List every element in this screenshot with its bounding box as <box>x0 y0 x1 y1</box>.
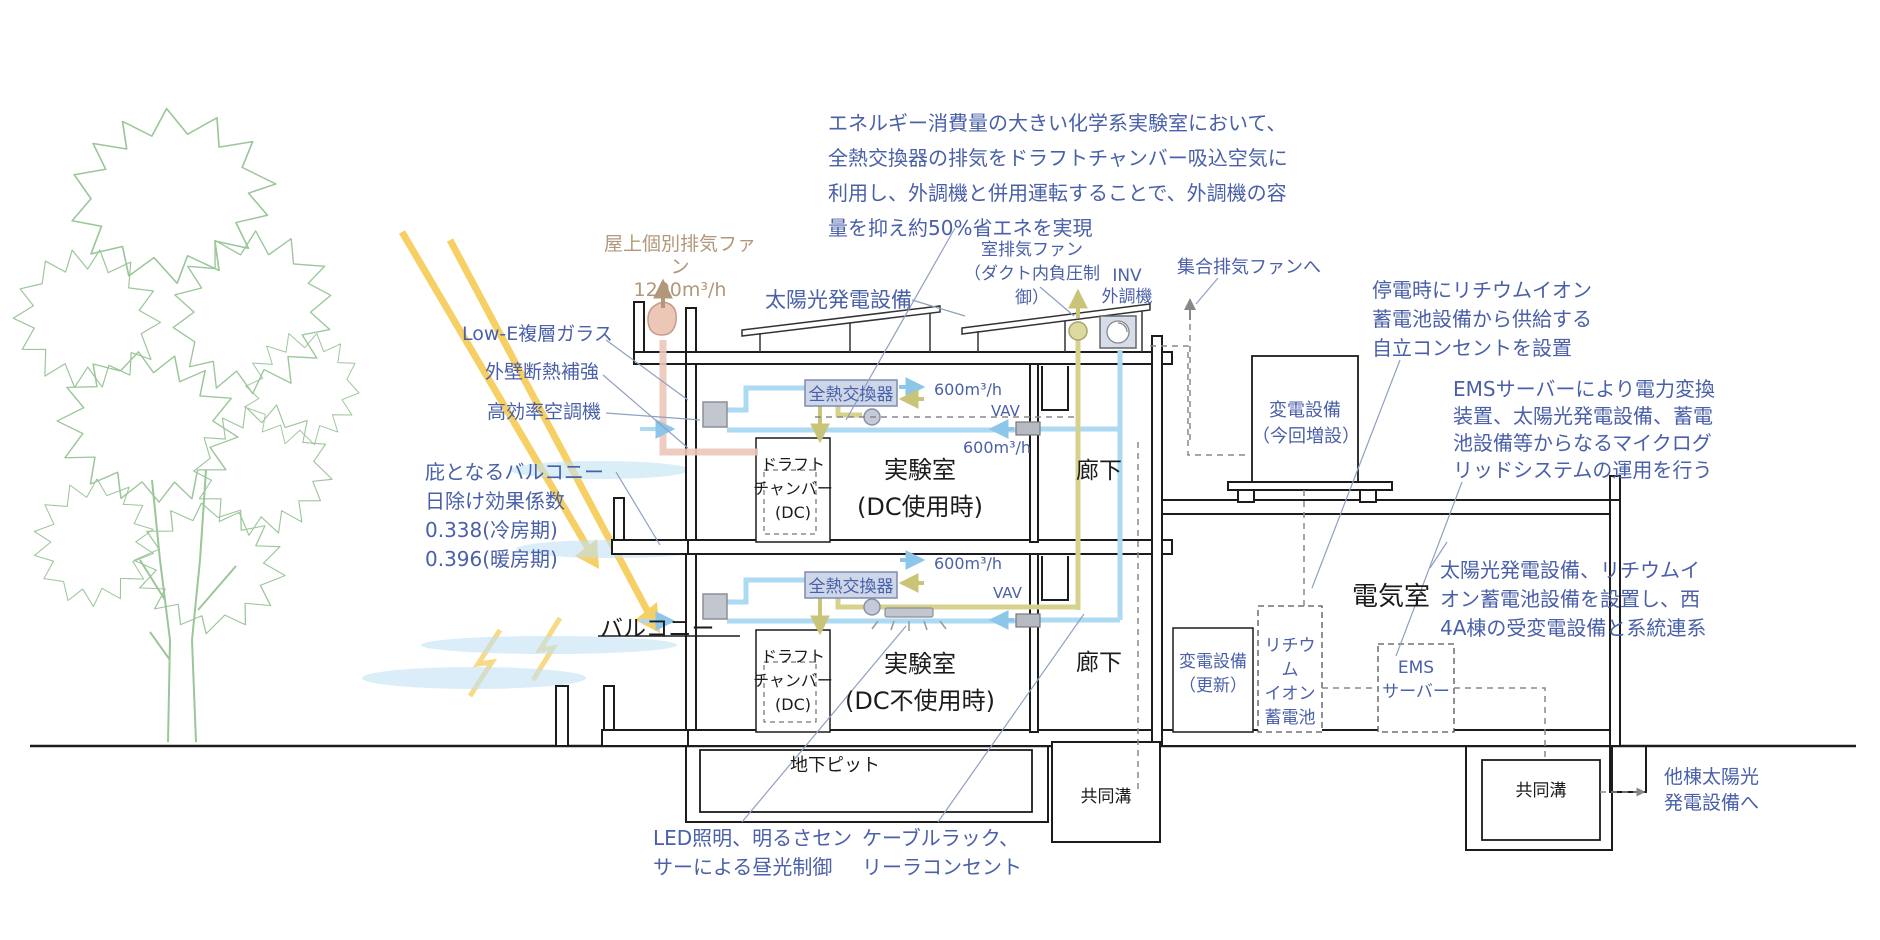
underground-pit-label: 地下ピット <box>790 754 880 778</box>
hvac-label: 高効率空調機 <box>487 400 601 426</box>
room-exhaust-fan-icon <box>1069 322 1087 340</box>
supply-flow-upper-label: 600m³/h <box>934 379 1002 401</box>
tree-icon <box>0 109 368 742</box>
heat-exchanger-lower-label: 全熱交換器 <box>807 576 895 599</box>
vav-box-upper-icon <box>1016 422 1040 435</box>
balcony-label: バルコニー <box>600 614 715 645</box>
corridor-lower-label: 廊下 <box>1076 648 1122 679</box>
vav-upper-label: VAV <box>991 401 1020 421</box>
grid-connection-note: 太陽光発電設備、リチウムイ オン蓄電池設備を設置し、西 4A棟の受変電設備と系統… <box>1440 556 1706 643</box>
building-section-diagram: エネルギー消費量の大きい化学系実験室において、 全熱交換器の排気をドラフトチャン… <box>0 0 1880 940</box>
inv-ahu-label: INV 外調機 <box>1092 266 1162 308</box>
other-building-pv-note: 他棟太陽光 発電設備へ <box>1664 764 1759 816</box>
eaves-balcony-note: 庇となるバルコニー 日除け効果係数 0.338(冷房期) 0.396(暖房期) <box>425 458 604 574</box>
outage-outlet-note: 停電時にリチウムイオン 蓄電池設備から供給する 自立コンセントを設置 <box>1372 276 1592 363</box>
utility-trench-left-label: 共同溝 <box>1052 786 1160 809</box>
energy-saving-note: エネルギー消費量の大きい化学系実験室において、 全熱交換器の排気をドラフトチャン… <box>828 106 1288 246</box>
transformer-renew-label: 変電設備 （更新） <box>1173 650 1253 698</box>
supply-flow-lower-label: 600m³/h <box>934 553 1002 575</box>
battery-label: リチウム イオン 蓄電池 <box>1258 634 1322 730</box>
ems-server-label: EMS サーバー <box>1378 656 1454 704</box>
corridor-upper-label: 廊下 <box>1076 456 1122 487</box>
room-exhaust-fan-label: 室排気ファン （ダクト内負圧制御） <box>952 238 1112 310</box>
vav-lower-label: VAV <box>993 583 1022 603</box>
transformer-new-label: 変電設備 （今回増設） <box>1252 398 1358 450</box>
led-daylight-note: LED照明、明るさセン サーによる昼光制御 <box>653 824 852 882</box>
ems-microgrid-note: EMSサーバーにより電力変換 装置、太陽光発電設備、蓄電 池設備等からなるマイク… <box>1453 376 1715 484</box>
wall-insulation-label: 外壁断熱補強 <box>485 360 599 386</box>
cable-rack-note: ケーブルラック、 リーラコンセント <box>862 824 1022 882</box>
outdoor-air-unit-icon <box>1100 316 1136 348</box>
lab-upper-label: 実験室 (DC使用時) <box>800 452 1040 526</box>
lab-lower-label: 実験室 (DC不使用時) <box>800 646 1040 720</box>
pv-equipment-label: 太陽光発電設備 <box>765 286 912 314</box>
utility-trench-right-label: 共同溝 <box>1482 780 1600 803</box>
electrical-room-label: 電気室 <box>1352 580 1430 615</box>
vav-box-lower-icon <box>1016 614 1040 627</box>
ahu-upper-icon <box>703 402 727 427</box>
rooftop-fan-label: 屋上個別排気ファン 1200m³/h <box>600 233 760 302</box>
low-e-glass-label: Low-E複層ガラス <box>462 322 613 348</box>
heat-exchanger-upper-label: 全熱交換器 <box>807 384 895 407</box>
vav-damper-lower-icon <box>864 599 880 615</box>
collective-exhaust-label: 集合排気ファンへ <box>1177 256 1321 280</box>
